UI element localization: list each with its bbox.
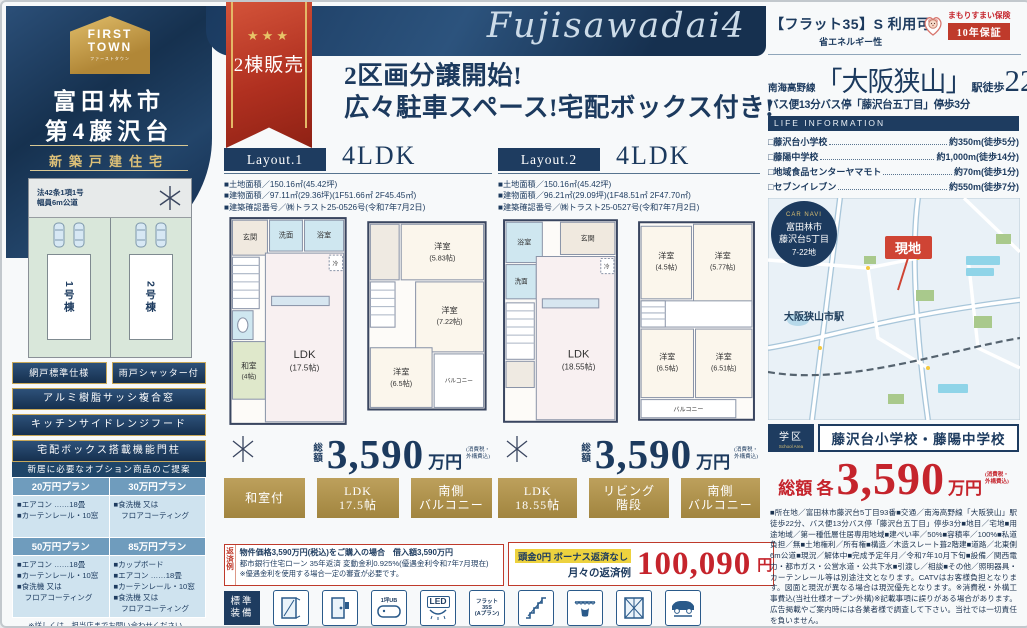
life-item-value: 約550m(徒歩7分) xyxy=(949,180,1019,193)
gold-badge-line: 17.5帖 xyxy=(339,498,377,512)
svg-text:(6.51帖): (6.51帖) xyxy=(711,363,736,372)
dotted-leader xyxy=(883,174,952,175)
insurance-warranty: 10年保証 xyxy=(948,23,1010,40)
plan-specs: ■土地面積／150.16㎡(45.42坪) ■建物面積／96.21㎡(29.09… xyxy=(498,179,699,213)
flat35-title: 【フラット35】S 利用可 xyxy=(770,14,931,34)
house-2: 2号棟 xyxy=(129,254,173,340)
life-item-name: □藤陽中学校 xyxy=(768,150,818,163)
life-info-item: □地域食品センターヤマモト約70m(徒歩1分) xyxy=(768,165,1019,180)
life-info-item: □藤沢台小学校約350m(徒歩5分) xyxy=(768,135,1019,150)
bear-mascot-icon xyxy=(921,13,945,37)
svg-text:浴室: 浴室 xyxy=(317,231,331,240)
dotted-leader xyxy=(829,144,947,145)
script-title: Fujisawadai4 xyxy=(487,6,746,46)
plan-specs: ■土地面積／150.16㎡(45.42坪) ■建物面積／97.11㎡(29.36… xyxy=(224,179,425,213)
svg-text:大阪狭山市駅: 大阪狭山市駅 xyxy=(784,310,845,323)
school-badge-en: School Area xyxy=(779,444,803,449)
insurance-texts: まもりすまい保険 10年保証 xyxy=(948,10,1010,40)
gold-badge-line: リビング xyxy=(603,484,655,498)
divider xyxy=(30,170,188,171)
site-plan-road: 法42条1項1号 幅員6m公道 xyxy=(29,179,191,218)
feature-badge: アルミ樹脂サッシ複合窓 xyxy=(12,388,206,410)
city-title: 富田林市 xyxy=(6,82,212,116)
spec-land: ■土地面積／150.16㎡(45.42坪) xyxy=(498,179,699,190)
school-district-badge: 学区 School Area xyxy=(768,424,814,452)
svg-text:(5.83帖): (5.83帖) xyxy=(429,253,455,262)
gold-badge-line: バルコニー xyxy=(419,498,484,512)
option-plan-body: ■食洗機 又は フロアコーティング xyxy=(109,496,206,538)
school-names: 藤沢台小学校・藤陽中学校 xyxy=(818,424,1019,452)
svg-text:洋室: 洋室 xyxy=(716,351,732,361)
monthly-payment-box: 頭金0円 ボーナス返済なし 月々の返済例 100,090 円 xyxy=(508,542,774,586)
plan-gold-badges: LDK18.55帖 リビング階段 南側バルコニー xyxy=(498,478,760,518)
school-badge-jp: 学区 xyxy=(779,428,803,443)
house-1: 1号棟 xyxy=(47,254,91,340)
floor-plan-2: 浴室 洗面 玄関 冷 LDK (18.55帖) 洋室 (4.5帖) 洋室 (5.… xyxy=(498,214,760,428)
svg-text:7-22地: 7-22地 xyxy=(792,247,816,257)
svg-text:(4帖): (4帖) xyxy=(242,372,257,381)
price-prefix: 総 額 xyxy=(581,444,591,465)
svg-text:冷: 冷 xyxy=(333,259,339,267)
svg-text:洋室: 洋室 xyxy=(715,251,731,261)
life-info-list: □藤沢台小学校約350m(徒歩5分) □藤陽中学校約1,000m(徒歩14分) … xyxy=(768,135,1019,195)
logo-subtitle: ファーストタウン xyxy=(90,56,130,62)
svg-text:洗面: 洗面 xyxy=(279,231,293,240)
life-info-item: □セブンイレブン約550m(徒歩7分) xyxy=(768,180,1019,195)
svg-text:洋室: 洋室 xyxy=(393,367,409,377)
svg-text:(17.5帖): (17.5帖) xyxy=(290,362,320,372)
loan-text: 物件価格3,590万円(税込)をご購入の場合 借入額3,590万円 都市銀行住宅… xyxy=(236,545,493,585)
feature-badge: 宅配ボックス搭載機能門柱 xyxy=(12,440,206,462)
gold-badge: リビング階段 xyxy=(589,478,668,518)
monthly-label: 月々の返済例 xyxy=(515,565,631,580)
svg-text:藤沢台5丁目: 藤沢台5丁目 xyxy=(779,233,829,244)
property-details: ■所在地／富田林市藤沢台5丁目93番■交通／南海高野線「大阪狭山」駅徒歩22分、… xyxy=(770,508,1017,627)
main-headline: 2区画分譲開始! 広々駐車スペース!宅配ボックス付き! xyxy=(344,60,774,125)
gold-badge-line: 南側 xyxy=(707,484,733,498)
svg-text:(7.22帖): (7.22帖) xyxy=(437,317,463,326)
option-plan-title: 50万円プラン xyxy=(13,538,110,556)
lot-1: 1号棟 xyxy=(29,218,110,357)
divider xyxy=(768,54,1021,55)
svg-text:和室: 和室 xyxy=(241,360,257,370)
divider xyxy=(498,173,760,174)
equipment-label: 標準 装備 xyxy=(224,591,260,625)
layout-type: 4LDK xyxy=(342,141,416,171)
total-price: 総額 各 3,590 万円 (消費税・ 外構費込) xyxy=(768,452,1019,505)
life-item-name: □地域食品センターヤマモト xyxy=(768,165,881,178)
plan-panel-2: Layout.2 4LDK ■土地面積／150.16㎡(45.42坪) ■建物面… xyxy=(498,148,760,524)
feature-badge: キッチンサイドレンジフード xyxy=(12,414,206,436)
insurance-name: まもりすまい保険 xyxy=(948,10,1010,21)
ribbon-label: 2棟販売 xyxy=(226,50,312,77)
price-amount: 3,590 xyxy=(595,430,692,478)
equipment-row: 標準 装備 1坪UB LED フラット 35S (Aプラン) xyxy=(224,590,701,626)
dotted-leader xyxy=(820,159,934,160)
price-row: 総 額 3,590 万円 (消費税・ 外構費込) xyxy=(581,430,758,478)
car-icon xyxy=(53,222,65,248)
compass-icon xyxy=(230,436,256,462)
divider xyxy=(224,173,492,174)
total-unit: 万円 xyxy=(948,474,982,499)
price-note: (消費税・ 外構費込) xyxy=(466,447,490,460)
floor-plan-1: 玄関 洗面 浴室 和室 (4帖) 冷 LDK (17.5帖) 洋室 (5.83帖… xyxy=(224,214,492,428)
car-icon xyxy=(155,222,167,248)
svg-text:洋室: 洋室 xyxy=(441,305,457,315)
life-item-name: □セブンイレブン xyxy=(768,180,836,193)
gold-badge: LDK18.55帖 xyxy=(498,478,577,518)
option-plan-title: 30万円プラン xyxy=(109,478,206,496)
svg-text:バルコニー: バルコニー xyxy=(445,378,473,385)
life-item-value: 約1,000m(徒歩14分) xyxy=(936,150,1019,163)
price-row: 総 額 3,590 万円 (消費税・ 外構費込) xyxy=(313,430,490,478)
screen-shutter-icon xyxy=(616,590,652,626)
flyer-root: FIRST TOWN ファーストタウン 富田林市 第4藤沢台 新築戸建住宅 法4… xyxy=(0,0,1027,628)
plan-gold-badges: 和室付 LDK17.5帖 南側バルコニー xyxy=(224,478,492,518)
spec-land: ■土地面積／150.16㎡(45.42坪) xyxy=(224,179,425,190)
svg-text:CAR NAVI: CAR NAVI xyxy=(786,212,822,218)
option-plans-note: ※詳しくは、担当店までお問い合わせください。 xyxy=(12,620,206,628)
loan-detail-box: 返済例 物件価格3,590万円(税込)をご購入の場合 借入額3,590万円 都市… xyxy=(224,544,504,586)
area-map: CAR NAVI 富田林市 藤沢台5丁目 7-22地 現地 大阪狭山市駅 xyxy=(768,198,1020,425)
house-2-label: 2号棟 xyxy=(143,281,158,314)
svg-text:洋室: 洋室 xyxy=(658,251,674,261)
flat35-block: 【フラット35】S 利用可 省エネルギー性 xyxy=(770,14,931,48)
spec-building: ■建物面積／97.11㎡(29.36坪)(1F51.66㎡ 2F45.45㎡) xyxy=(224,190,425,201)
dotted-leader xyxy=(838,189,947,190)
svg-text:富田林市: 富田林市 xyxy=(786,221,822,232)
layout-tag: Layout.1 xyxy=(224,148,326,171)
svg-text:(6.5帖): (6.5帖) xyxy=(657,363,679,372)
compass-icon xyxy=(504,436,530,462)
layout-type: 4LDK xyxy=(616,141,690,171)
led-light-icon: LED xyxy=(420,590,456,626)
life-info-item: □藤陽中学校約1,000m(徒歩14分) xyxy=(768,150,1019,165)
divider xyxy=(30,145,188,146)
car-icons xyxy=(135,222,167,248)
double-glazing-window-icon xyxy=(273,590,309,626)
life-item-value: 約70m(徒歩1分) xyxy=(954,165,1019,178)
svg-text:(18.55帖): (18.55帖) xyxy=(562,361,596,371)
svg-text:LDK: LDK xyxy=(294,349,316,361)
gold-badge-line: 和室付 xyxy=(245,491,284,505)
walk-minutes: 22 xyxy=(1005,63,1027,99)
monthly-amount: 100,090 xyxy=(637,548,751,581)
svg-text:玄関: 玄関 xyxy=(581,233,595,242)
car-icon xyxy=(73,222,85,248)
gold-badge-line: 18.55帖 xyxy=(515,498,560,512)
svg-text:現地: 現地 xyxy=(895,241,921,256)
flat35-subtitle: 省エネルギー性 xyxy=(770,35,931,48)
gold-badge: 南側バルコニー xyxy=(411,478,492,518)
option-plan-body: ■エアコン ……18畳 ■カーテンレール・10窓 xyxy=(13,496,110,538)
total-note: (消費税・ 外構費込) xyxy=(985,472,1009,486)
payment-highlight: 頭金0円 ボーナス返済なし xyxy=(515,549,631,563)
gold-badge-line: 階段 xyxy=(616,498,642,512)
entrance-door-icon xyxy=(322,590,358,626)
laundry-awning-icon xyxy=(567,590,603,626)
gold-badge: 南側バルコニー xyxy=(681,478,760,518)
school-district: 学区 School Area 藤沢台小学校・藤陽中学校 xyxy=(768,424,1019,452)
gold-badge-line: 南側 xyxy=(438,484,464,498)
life-info-header: LIFE INFORMATION xyxy=(768,116,1019,131)
price-unit: 万円 xyxy=(428,448,462,473)
car-icon xyxy=(135,222,147,248)
life-item-name: □藤沢台小学校 xyxy=(768,135,827,148)
layout-tag: Layout.2 xyxy=(498,148,600,171)
gold-badge-line: バルコニー xyxy=(688,498,753,512)
car-icons xyxy=(53,222,85,248)
loan-line1: 物件価格3,590万円(税込)をご購入の場合 借入額3,590万円 xyxy=(240,547,489,558)
sales-ribbon: ★★★ 2棟販売 xyxy=(226,2,312,148)
svg-text:(5.77帖): (5.77帖) xyxy=(710,263,735,272)
flat35s-label: フラット 35S (Aプラン) xyxy=(475,599,499,617)
house-1-label: 1号棟 xyxy=(62,281,77,314)
logo-line2: TOWN xyxy=(88,41,132,54)
lot-2: 2号棟 xyxy=(110,218,192,357)
feature-badge: 雨戸シャッター付 xyxy=(112,362,207,384)
svg-text:LDK: LDK xyxy=(568,348,590,360)
project-title: 第4藤沢台 xyxy=(6,112,212,146)
price-prefix: 総 額 xyxy=(313,444,323,465)
led-label: LED xyxy=(427,596,450,607)
svg-text:洋室: 洋室 xyxy=(434,241,450,251)
total-amount: 3,590 xyxy=(836,452,945,505)
option-plan-title: 20万円プラン xyxy=(13,478,110,496)
stairs-icon xyxy=(518,590,554,626)
svg-text:冷: 冷 xyxy=(604,263,610,271)
car-space-icon xyxy=(665,590,701,626)
option-plan-body: ■カップボード ■エアコン ……18畳 ■カーテンレール・10窓 ■食洗機 又は… xyxy=(109,556,206,618)
svg-text:洋室: 洋室 xyxy=(659,351,675,361)
svg-text:(6.5帖): (6.5帖) xyxy=(390,379,412,388)
walk-label: 駅徒歩 xyxy=(972,79,1005,95)
bus-access: バス便13分バス停「藤沢台五丁目」停歩3分 xyxy=(768,97,970,112)
price-amount: 3,590 xyxy=(327,430,424,478)
total-prefix: 総額 各 xyxy=(778,474,833,499)
category-label: 新築戸建住宅 xyxy=(6,151,212,170)
option-plan-body: ■エアコン ……18畳 ■カーテンレール・10窓 ■食洗機 又は フロアコーティ… xyxy=(13,556,110,618)
plan-panel-1: Layout.1 4LDK ■土地面積／150.16㎡(45.42坪) ■建物面… xyxy=(224,148,492,524)
right-column: 【フラット35】S 利用可 省エネルギー性 まもりすまい保険 10年保証 南海高… xyxy=(768,2,1025,626)
gold-badge-line: LDK xyxy=(344,484,372,498)
option-plans: 新居に必要なオプション商品のご提案 20万円プラン 30万円プラン ■エアコン … xyxy=(12,462,206,628)
svg-text:(4.5帖): (4.5帖) xyxy=(656,263,678,272)
rail-line: 南海高野線 xyxy=(768,80,816,94)
gold-badge: LDK17.5帖 xyxy=(317,478,398,518)
loan-line2: 都市銀行住宅ローン 35年返済 変動金利0.925%(優遇金利令和7年7月現在) xyxy=(240,558,489,569)
option-plans-header: 新居に必要なオプション商品のご提案 xyxy=(12,462,206,477)
site-plan-lots: 1号棟 2号棟 xyxy=(29,218,191,357)
svg-text:浴室: 浴室 xyxy=(517,237,531,246)
svg-text:洗面: 洗面 xyxy=(515,277,529,286)
monthly-left: 頭金0円 ボーナス返済なし 月々の返済例 xyxy=(515,549,631,580)
station-access: 南海高野線 「大阪狭山」 駅徒歩 22 分 xyxy=(768,60,1027,99)
price-unit: 万円 xyxy=(696,448,730,473)
spec-permit: ■建築確認番号／㈱トラスト25-0527号(令和7年7月2日) xyxy=(498,202,699,213)
unit-bath-icon: 1坪UB xyxy=(371,590,407,626)
loan-side-label: 返済例 xyxy=(225,545,236,585)
spec-permit: ■建築確認番号／㈱トラスト25-0526号(令和7年7月2日) xyxy=(224,202,425,213)
insurance-block: まもりすまい保険 10年保証 xyxy=(921,10,1021,40)
option-plan-title: 85万円プラン xyxy=(109,538,206,556)
site-plan: 法42条1項1号 幅員6m公道 1号棟 2号棟 xyxy=(28,178,192,358)
flat35s-icon: フラット 35S (Aプラン) xyxy=(469,590,505,626)
feature-badges: 網戸標準仕様 雨戸シャッター付 アルミ樹脂サッシ複合窓 キッチンサイドレンジフー… xyxy=(12,362,206,466)
svg-text:バルコニー: バルコニー xyxy=(673,407,703,414)
svg-text:玄関: 玄関 xyxy=(243,233,257,242)
road-note: 法42条1項1号 幅員6m公道 xyxy=(37,188,84,208)
compass-icon xyxy=(157,185,183,211)
spec-building: ■建物面積／96.21㎡(29.09坪)(1F48.51㎡ 2F47.70㎡) xyxy=(498,190,699,201)
station-name: 「大阪狭山」 xyxy=(816,60,972,99)
price-note: (消費税・ 外構費込) xyxy=(734,447,758,460)
gold-badge-line: LDK xyxy=(524,484,552,498)
gold-badge: 和室付 xyxy=(224,478,305,518)
feature-badge: 網戸標準仕様 xyxy=(12,362,107,384)
loan-line3: ※優遇金利を使用する場合一定の審査が必要です。 xyxy=(240,569,489,579)
life-item-value: 約350m(徒歩5分) xyxy=(949,135,1019,148)
ribbon-stars: ★★★ xyxy=(226,28,312,44)
